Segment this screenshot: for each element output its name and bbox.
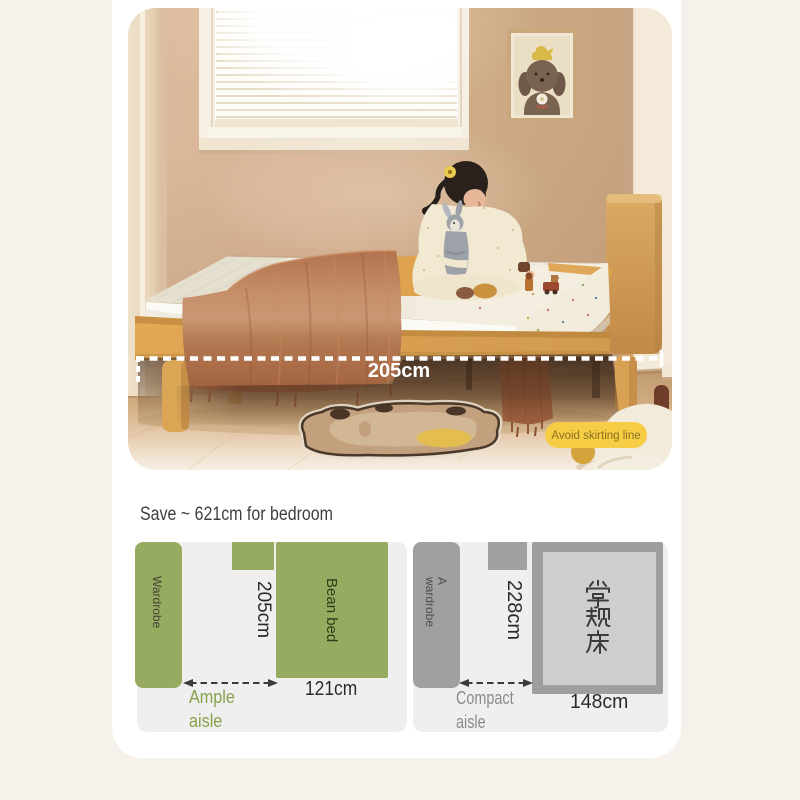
svg-text:205cm: 205cm: [368, 360, 430, 382]
svg-text:Avoid skirting line: Avoid skirting line: [551, 430, 640, 442]
